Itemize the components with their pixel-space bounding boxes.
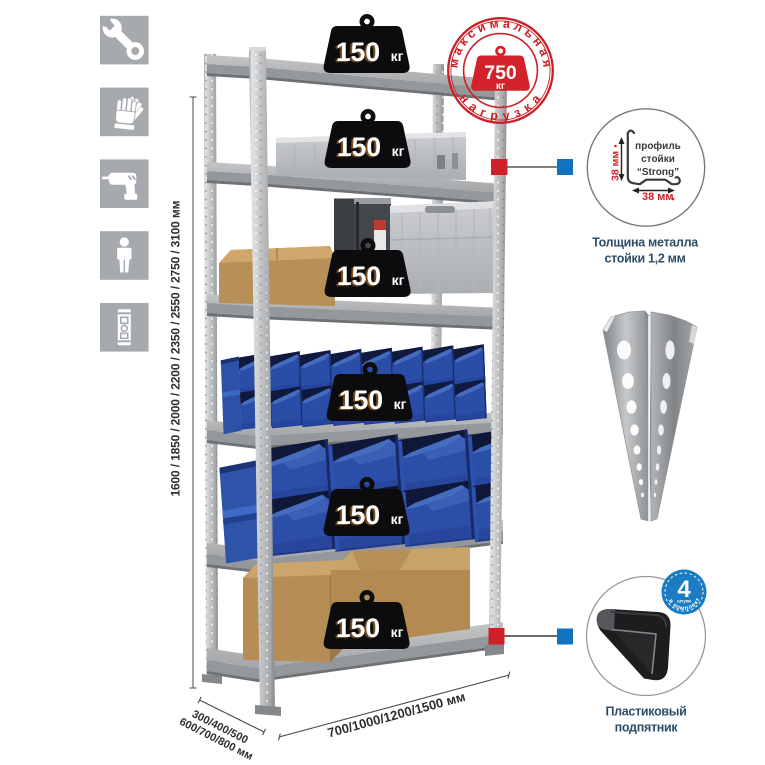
- svg-text:профиль: профиль: [635, 140, 681, 152]
- svg-text:1600 / 1850 / 2000 / 2200 / 23: 1600 / 1850 / 2000 / 2200 / 2350 / 2550 …: [169, 200, 183, 496]
- svg-text:Пластиковый: Пластиковый: [605, 705, 686, 719]
- svg-text:стойки 1,2 мм: стойки 1,2 мм: [604, 252, 685, 266]
- svg-text:кг: кг: [496, 81, 505, 92]
- svg-text:стойки: стойки: [641, 154, 675, 165]
- svg-text:подпятник: подпятник: [615, 721, 679, 735]
- svg-text:“Strong”: “Strong”: [637, 167, 679, 178]
- svg-text:штуки: штуки: [677, 599, 691, 604]
- svg-text:38 мм: 38 мм: [642, 191, 674, 203]
- svg-text:38 мм: 38 мм: [610, 151, 622, 181]
- svg-text:Толщина металла: Толщина металла: [592, 236, 699, 250]
